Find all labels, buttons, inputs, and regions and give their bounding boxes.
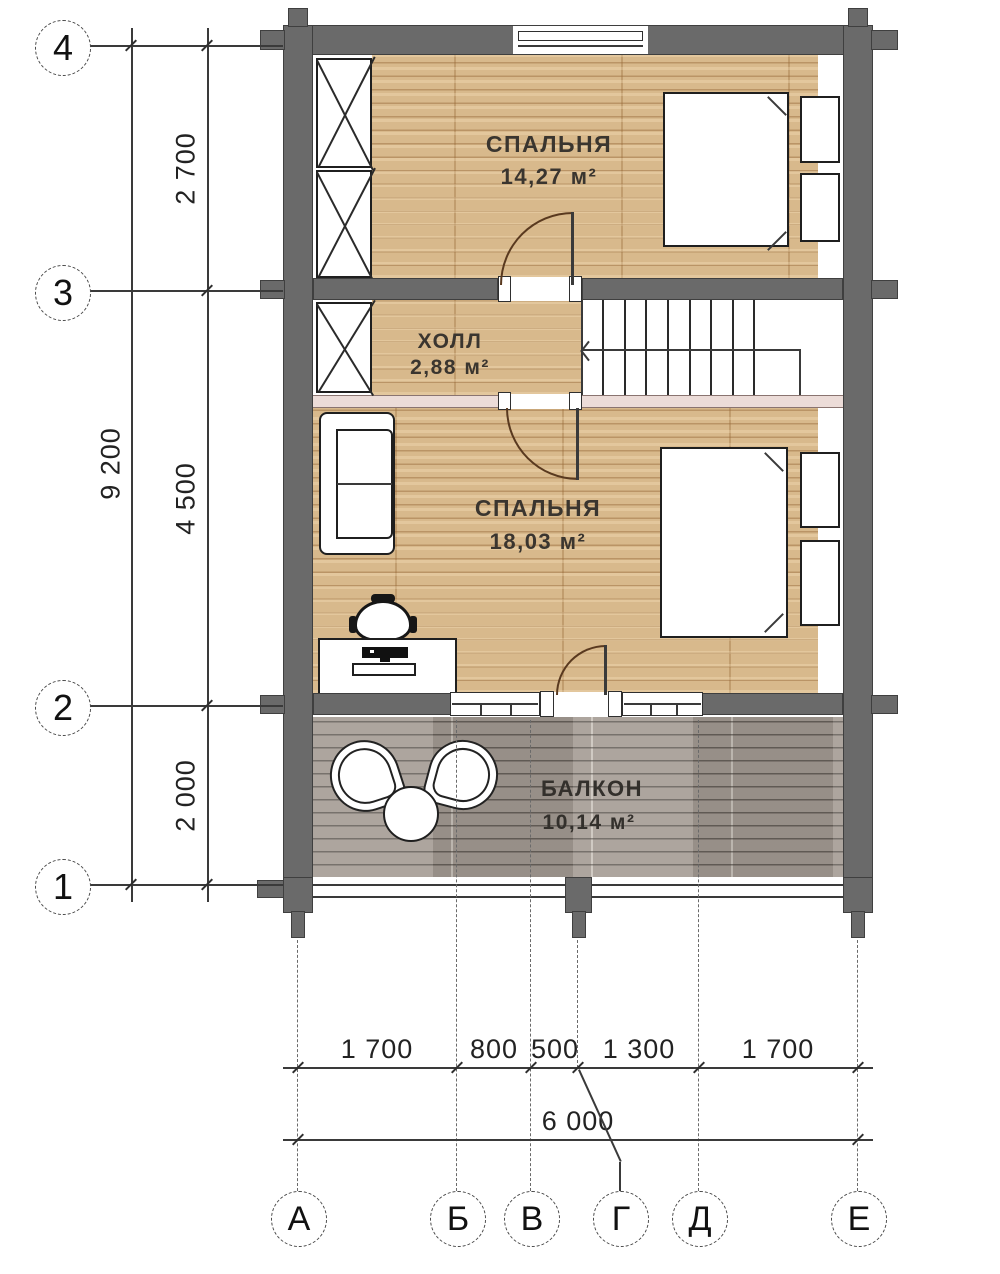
room-label-hall: ХОЛЛ — [340, 331, 560, 352]
office-chair — [354, 600, 412, 642]
bed-2 — [660, 447, 788, 638]
room-label-balcony: БАЛКОН — [482, 778, 702, 800]
bed-2-pillow-bottom — [800, 540, 840, 626]
axis-circle-4: 4 — [35, 20, 91, 76]
wall-axis2-right — [701, 693, 843, 715]
wardrobe-bedroom1-lower — [316, 170, 372, 278]
dim-label-2000: 2 000 — [171, 731, 202, 861]
axis-circle-2: 2 — [35, 680, 91, 736]
room-area-balcony: 10,14 м² — [479, 812, 699, 833]
door3-leaf — [604, 645, 607, 695]
door3-jamb-right — [608, 691, 622, 717]
balcony-table — [383, 786, 439, 842]
floor-plan: СПАЛЬНЯ 14,27 м² ХОЛЛ 2,88 м² СПАЛЬНЯ 18… — [0, 0, 1000, 1274]
room-area-hall: 2,88 м² — [340, 357, 560, 378]
dim-line-left-total — [131, 28, 133, 902]
axis-circle-e: Е — [831, 1191, 887, 1247]
room-area-bedroom1: 14,27 м² — [439, 166, 659, 188]
wall-axis3-right — [582, 278, 843, 300]
bed-2-pillow-top — [800, 452, 840, 528]
bed-1 — [663, 92, 789, 247]
axis-circle-3: 3 — [35, 265, 91, 321]
dim-label-1300: 1 300 — [574, 1034, 704, 1065]
desk-monitor — [362, 647, 408, 658]
door2-leaf — [576, 408, 579, 480]
door1-leaf — [571, 212, 574, 285]
desk-keyboard — [352, 663, 416, 676]
dim-label-1700b: 1 700 — [713, 1034, 843, 1065]
room-area-bedroom2: 18,03 м² — [428, 531, 648, 553]
axis-circle-1: 1 — [35, 859, 91, 915]
dim-label-2700: 2 700 — [171, 104, 202, 234]
balcony-post-middle — [565, 877, 592, 913]
dim-label-6000: 6 000 — [513, 1106, 643, 1137]
dim-line-bottom-total — [283, 1139, 873, 1141]
door3-jamb-left — [540, 691, 554, 717]
wall-right — [843, 25, 873, 913]
chair-headrest — [371, 594, 395, 603]
wall-axis2-left — [313, 693, 452, 715]
room-label-bedroom1: СПАЛЬНЯ — [439, 133, 659, 156]
wall-left — [283, 25, 313, 913]
dim-label-1700a: 1 700 — [312, 1034, 442, 1065]
dim-label-9200: 9 200 — [96, 399, 127, 529]
dim-label-4500: 4 500 — [171, 434, 202, 564]
bed-1-pillow-top — [800, 96, 840, 163]
axis-circle-a: А — [271, 1191, 327, 1247]
room-label-bedroom2: СПАЛЬНЯ — [428, 497, 648, 520]
stair-divider — [582, 349, 800, 351]
bed-1-pillow-bottom — [800, 173, 840, 242]
wardrobe-bedroom1-upper — [316, 58, 372, 168]
axis-circle-b: Б — [430, 1191, 486, 1247]
wall-axis3-left — [313, 278, 498, 300]
axis-circle-d: Д — [672, 1191, 728, 1247]
dim-line-left-segments — [207, 28, 209, 902]
axis-circle-g: Г — [593, 1191, 649, 1247]
axis-circle-v: В — [504, 1191, 560, 1247]
